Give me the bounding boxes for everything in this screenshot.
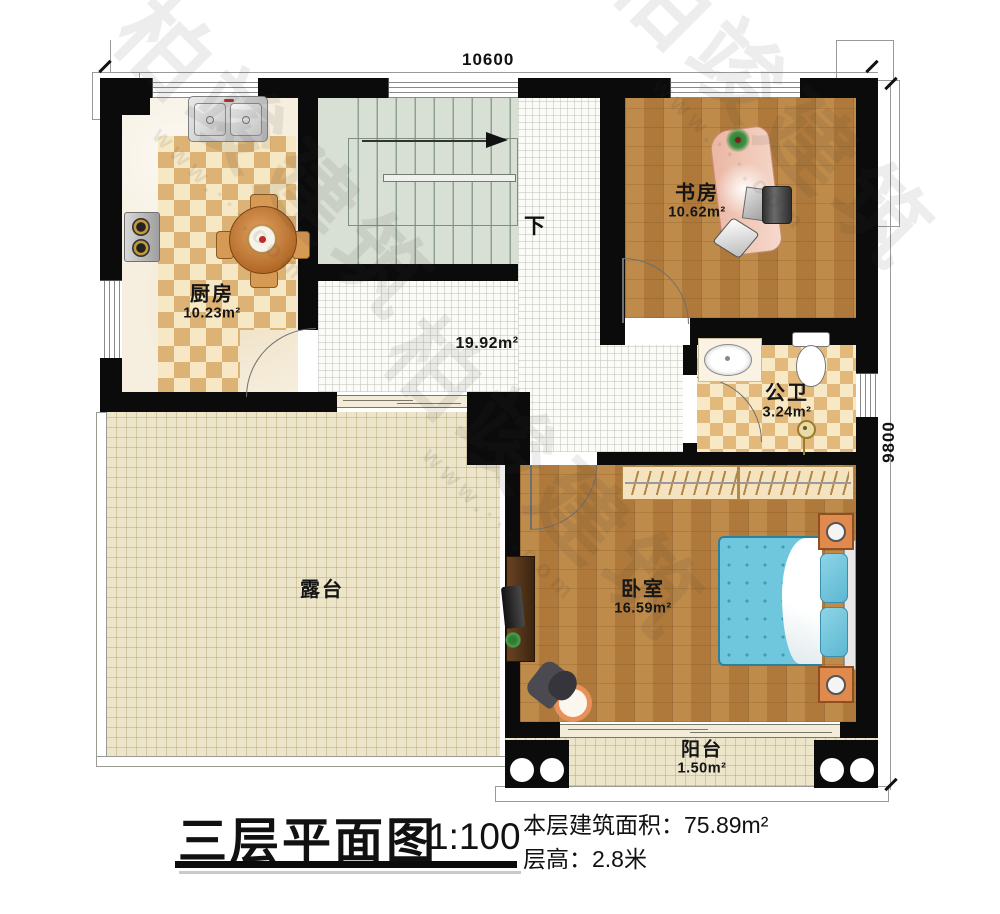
floor-area-line: 本层建筑面积：75.89m² [523,806,768,840]
floor-plan-canvas: 下 [0,0,1000,914]
wall-kitchen-right-lower [298,281,318,330]
column-icon [850,758,874,782]
study-computer-icon [762,186,792,224]
toilet-icon [790,332,830,390]
kitchen-window [152,78,260,98]
kitchen-side-window [100,280,122,360]
terrace-sliding-door [337,395,467,408]
terrace-railing-left [96,412,107,766]
wall-bedroom-top-right [597,452,878,465]
wall-corner-top-left [100,78,150,115]
bedroom-door-leaf [530,465,532,529]
pillow-icon [820,553,848,603]
bathroom-window [856,373,878,419]
pillow-icon [820,607,848,657]
balcony-sliding-door [560,724,840,738]
title-underline [175,861,517,868]
plant-icon [505,632,521,648]
column-icon [510,758,534,782]
floor-height-label: 层高： [523,846,592,872]
study-label: 书房10.62m² [668,183,726,222]
stove-icon [124,212,160,262]
kitchen-sink-icon [188,96,268,142]
dimension-top-value: 10600 [462,50,514,70]
hallway-area-label: 19.92m² [455,335,518,353]
balcony-bottom-outline [495,786,889,802]
stairs-direction-arrow-icon [486,132,508,148]
plant-icon [726,128,750,152]
title-underline-shadow [179,871,521,874]
wall-stairs-bottom [298,264,518,281]
stairwell-window [388,78,520,98]
floor-height-line: 层高：2.8米 [523,840,647,874]
wall-right-lower [856,417,878,722]
terrace-label: 露台 [300,579,344,601]
wall-right-upper [856,78,878,373]
wall-top-2 [258,78,388,98]
column-icon [540,758,564,782]
dimension-tick [884,778,897,791]
bedroom-monitor-icon [501,585,525,629]
plan-scale: 1:100 [428,816,521,858]
dimension-right-value: 9800 [879,421,899,463]
floor-area-value: 75.89m² [684,812,768,838]
wall-bathroom-left-lower [683,443,697,452]
wall-bedroom-bottom-left [505,722,560,738]
bedroom-label: 卧室16.59m² [614,579,672,618]
stairs-direction-line [362,140,488,142]
dimension-line-top [100,72,878,73]
terrace-railing-bottom [96,756,508,767]
hallway-floor-vertical [518,98,600,452]
floor-area-label: 本层建筑面积： [523,812,684,838]
stairs-mid-rail [383,174,516,182]
floor-drain-icon [797,420,816,439]
kitchen-checker-floor-lower [158,330,240,392]
nightstand-lamp-bottom [818,666,854,703]
dining-table-icon [222,198,302,282]
wall-bedroom-bottom-right [840,722,878,738]
wall-bathroom-left-upper [683,345,697,375]
stairs-down-label: 下 [524,210,545,240]
column-icon [820,758,844,782]
office-chair-icon [528,660,580,708]
basin-icon [704,344,752,376]
wardrobe [622,466,854,500]
study-door-leaf [622,258,624,323]
study-window [670,78,802,98]
nightstand-lamp-top [818,513,854,550]
hallway-floor-east [600,345,683,452]
wall-top-3 [518,78,670,98]
stairs-inner-outline [348,138,518,226]
kitchen-label: 厨房10.23m² [183,284,241,323]
balcony-label: 阳台1.50m² [678,739,727,777]
bathroom-label: 公卫3.24m² [763,383,812,422]
floor-height-value: 2.8米 [592,846,647,872]
bed-sheet-fold [782,538,822,664]
dimension-ext-top-left [110,40,111,73]
roof-outline-right [876,80,900,227]
